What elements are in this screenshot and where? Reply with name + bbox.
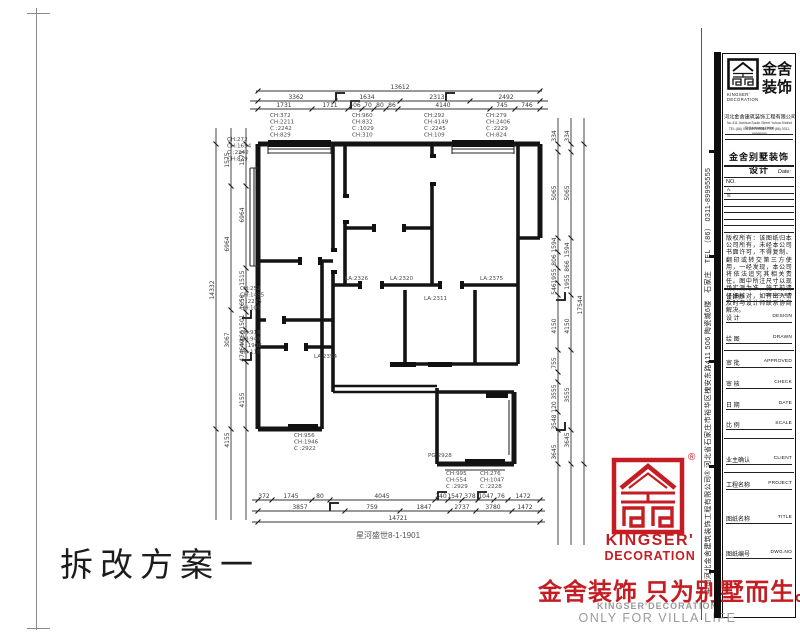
dimension-value: 3362 [288,94,303,101]
dimension-value: 3857 [292,504,307,511]
titleblock-rule [725,139,793,140]
room-label: LA:2375 [480,276,504,282]
ceiling-height-note: C :2242 [227,150,249,156]
ceiling-height-note: C :2225 [240,299,262,305]
ceiling-height-note: C :2245 [424,126,446,132]
fold-mark [709,360,714,363]
ceiling-height-note: CH:279 [486,113,507,119]
dimension-value: 1634 [359,94,374,101]
fold-mark [709,570,714,573]
dimension-value: 759 [366,504,378,511]
floorplan-interior-walls [258,144,540,464]
titleblock-black-bar [714,52,721,618]
field-underline [726,367,792,368]
dimension-value: 1711 [322,102,337,109]
titleblock-rule [724,177,794,178]
field-label-zh: 设计师 [726,292,744,301]
ceiling-height-note: CH:276 [480,471,501,477]
dimension-value: 4155 [239,392,246,407]
ceiling-height-note: C :1029 [352,126,374,132]
field-label-en: CLIENT [774,456,792,461]
dimension-value: 6964 [239,207,246,222]
field-underline [726,429,792,430]
dimension-value: 746 [521,102,533,109]
dimension-value: 546 [551,283,558,295]
room-label: PG:2928 [428,453,452,459]
dimension-value: 2492 [498,94,513,101]
field-label-zh: 设 计 [726,313,740,322]
ceiling-height-note: CH:272 [227,137,248,143]
dimension-value: 3645 [564,432,571,447]
floorplan-sills [268,140,514,464]
dimension-value: 2737 [454,504,469,511]
dimension-value: 806 [551,254,558,266]
dimension-value: 1501 [239,314,246,329]
dimension-value: 1047 [478,493,493,500]
dimension-value: 745 [496,102,508,109]
titleblock-logo-icon [727,58,759,90]
titleblock-rule [724,225,794,226]
ceiling-height-note: CH:372 [270,113,291,119]
dimension-value: 3645 [551,444,558,459]
dimension-value: 86 [388,102,396,109]
titleblock-rule [724,288,794,290]
floorplan-exterior-walls [258,144,540,464]
ceiling-height-note: CH:105 [240,306,261,312]
dimension-value: 120 [551,401,558,413]
ceiling-height-note: C :2922 [294,446,316,452]
field-label-en: CHECK [774,380,792,385]
dimension-value: 1472 [515,493,530,500]
dimension-value: 334 [564,130,571,142]
dimension-value: 76 [497,493,505,500]
dimension-value: 755 [551,357,558,369]
ceiling-height-note: C :1908 [240,343,262,349]
ceiling-height-note: CH:1946 [294,440,319,446]
titleblock-rule [724,206,794,207]
field-label-en: DESIGNED [765,293,792,298]
field-label-zh: 审 批 [726,358,740,367]
field-label-zh: 业主确认 [726,455,750,464]
field-label-en: PROJECT [768,481,792,486]
dimension-value: 1731 [276,102,291,109]
ceiling-height-note: CH:4149 [424,120,449,126]
field-label-zh: 比 例 [726,420,740,429]
titleblock-rule [724,165,794,167]
titleblock-rule [724,199,794,200]
ceiling-height-note: CH:832 [352,120,373,126]
corner-logo-brand-line2: DECORATION [600,549,700,563]
dimension-value: 1547 [447,493,462,500]
dimension-value: 3548 [551,414,558,429]
room-label: LA:2311 [424,296,448,302]
dimension-value: 334 [551,130,558,142]
dimension-value: 1745 [283,493,298,500]
field-label-en: APPROVED [764,359,792,364]
dimension-value: 1472 [517,504,532,511]
dimension-value: 4150 [564,318,571,333]
dimension-value: 1955 [564,274,571,289]
dimension-value: 240 [435,493,447,500]
field-label-zh: 工程名称 [726,480,750,489]
dimension-value: 3555 [551,384,558,399]
titleblock-rule [724,186,794,187]
titleblock-logo-sub-2: DECORATION [727,97,761,102]
ceiling-height-note: CH:829 [270,133,291,139]
field-underline [726,489,792,490]
ceiling-height-note: CH:949 [240,337,261,343]
dimension-value: 1594 [564,242,571,257]
titleblock-rule [724,193,794,194]
dimension-value: 5065 [564,185,571,200]
floorplan-beam [333,386,437,392]
field-underline [726,388,792,389]
dimension-value: 13612 [390,84,409,91]
dimension-value: 1515 [239,270,246,285]
ceiling-height-note: CH:2406 [486,120,511,126]
dimension-value: 4045 [374,493,389,500]
ceiling-height-note: CH:554 [446,478,467,484]
ceiling-height-note: C :2228 [480,484,502,490]
field-label-en: DRAWN [773,335,792,340]
titleblock-company-cn: 河北金舍建筑装饰工程有限公司 [724,113,789,120]
field-label-zh: 审 核 [726,379,740,388]
ceiling-height-note: CH:2211 [270,120,295,126]
field-label-en: DATE [779,401,792,406]
ceiling-height-note: CH:824 [486,133,507,139]
ceiling-height-note: CH:1047 [480,478,505,484]
ceiling-height-note: CH:1455 [240,293,265,299]
dimension-value: 14332 [209,280,216,299]
dimension-value: 6964 [224,236,231,251]
dimension-value: 372 [258,493,270,500]
ceiling-height-note: CH:916 [240,330,261,336]
ceiling-height-note: CH:1654 [227,144,252,150]
titleblock-rule [724,232,794,234]
dimension-value: 17544 [577,295,584,314]
titleblock-logo-sub: KINGSER' DECORATION [727,92,761,102]
ceiling-height-note: C :2242 [270,126,292,132]
fold-mark [709,150,714,153]
kingser-corner-logo-icon [598,450,698,536]
field-underline [726,464,792,465]
dimension-value: 3555 [564,387,571,402]
field-label-en: TITLE [778,515,792,520]
field-label-zh: 图纸编号 [726,549,750,558]
field-underline [726,322,792,323]
titleblock-rule [724,438,794,439]
slogan-en-line2: ONLY FOR VILLA LIFE [565,611,750,625]
field-label-en: SCALE [775,421,792,426]
dimension-value: 3067 [224,332,231,347]
room-label: LA:2320 [390,276,414,282]
dimension-value: 3780 [485,504,500,511]
room-label: LA:2326 [345,276,369,282]
dimension-value: 5065 [551,185,558,200]
ceiling-height-note: CH:956 [294,433,315,439]
ceiling-height-note: C :2229 [486,126,508,132]
field-underline [726,558,792,559]
page-title-stamp: 拆改方案一 [60,538,260,586]
ceiling-height-note: CH:109 [424,133,445,139]
corner-logo-brand-line1: KINGSER' [600,532,700,550]
titleblock-brand-cn-2: 装饰 [762,76,792,97]
dimension-value: 4155 [224,432,231,447]
field-label-en: DESIGN [772,314,792,319]
dimension-value: 80 [316,493,324,500]
ceiling-height-note: C :2929 [446,484,468,490]
field-underline [726,523,792,524]
dimension-value: 80 [376,102,384,109]
field-label-en: DWG.NO [771,550,792,555]
titleblock-rule [724,219,794,220]
dimension-value: 2313 [429,94,444,101]
titleblock-side-company-text: 中国河北金舍建筑装饰工程有限公司® 河北省石家庄市裕华区槐安东路411 506 … [703,34,713,594]
field-label-zh: 图纸名称 [726,514,750,523]
ceiling-height-note: CH:960 [352,113,373,119]
fold-mark [709,465,714,468]
titleblock-no-label: NO. [726,179,736,185]
dimension-value: 1847 [416,504,431,511]
plan-caption: 星河盛世8-1-1901 [356,530,420,541]
dimension-value: 4140 [435,102,450,109]
dimension-value: 14721 [388,515,407,522]
field-underline [726,409,792,410]
ceiling-height-note: CH:292 [424,113,445,119]
ceiling-height-note: CH:829 [227,157,248,163]
slogan-en-line1: KINGSER'DECORATION [565,601,750,611]
titleblock-notice: 版权所有：该图纸归本公司所有，未经本公司书面许可，不得复制、翻印或转交第三方使用… [726,236,792,315]
ceiling-height-note: CH:252 [240,286,261,292]
ceiling-height-note: CH:310 [352,133,373,139]
dimension-value: 866 [564,260,571,272]
ceiling-height-note: CH:995 [446,471,467,477]
titleblock-date-label: Date: [727,169,791,175]
dimension-value: 406 [349,102,361,109]
fold-mark [709,255,714,258]
titleblock-rev-a: A. [727,187,731,192]
drawing-sheet: 1361233621634231324921731171140670808641… [0,0,800,640]
dimension-value: 4150 [551,318,558,333]
dimension-value: 1594 [551,237,558,252]
field-label-zh: 绘 图 [726,334,740,343]
titleblock-rule [725,134,793,135]
dimension-value: 378 [464,493,476,500]
dimension-value: 70 [364,102,372,109]
titleblock-outer-line [701,28,702,620]
titleblock-rule [724,350,794,351]
room-label: LA:2354 [314,354,338,360]
ceiling-height-note: CH:110 [240,350,261,356]
field-underline [726,343,792,344]
registered-mark: ® [688,452,695,463]
titleblock-rule [724,472,794,473]
dimension-value: 1955 [551,268,558,283]
field-label-zh: 日 期 [726,400,740,409]
field-underline [726,301,792,302]
titleblock-rule [724,212,794,213]
titleblock-rev-s: S: [727,193,731,198]
